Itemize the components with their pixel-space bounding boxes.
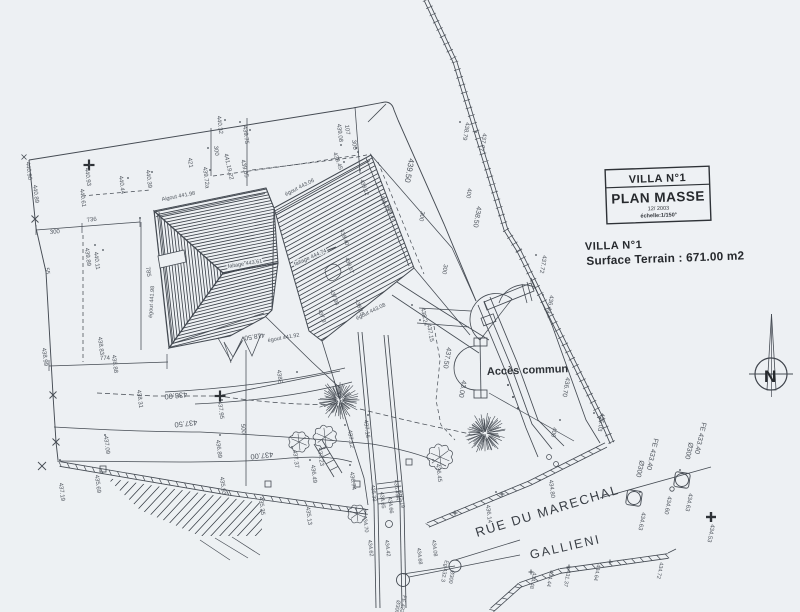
svg-text:VILLA N°1: VILLA N°1 <box>585 239 643 253</box>
svg-text:500: 500 <box>239 424 246 435</box>
svg-text:774: 774 <box>100 356 111 362</box>
svg-text:N: N <box>764 367 776 386</box>
svg-text:VILLA N°1: VILLA N°1 <box>629 172 687 186</box>
svg-text:échelle:1/150°: échelle:1/150° <box>640 212 677 219</box>
svg-text:12/ 2003: 12/ 2003 <box>648 206 670 213</box>
svg-text:300: 300 <box>50 229 61 236</box>
